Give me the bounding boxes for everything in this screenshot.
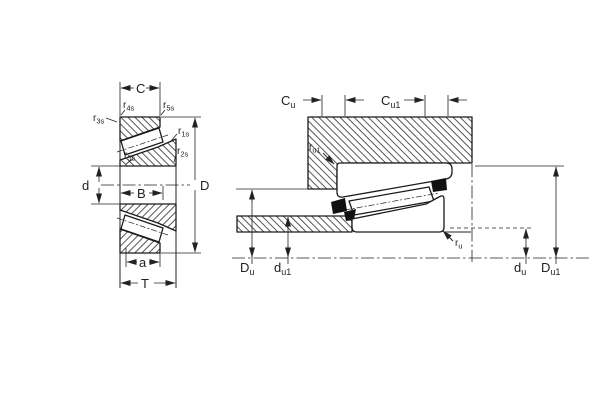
- chamfer-label-r4: r4s: [123, 100, 135, 113]
- dim-label-du: du: [514, 260, 526, 277]
- dim-label-d: d: [82, 178, 89, 193]
- cage-wedge-lower: [331, 198, 347, 214]
- shaft-section: [237, 216, 352, 232]
- dim-label-a: a: [139, 255, 147, 270]
- bearing-diagram: C B a T d D r3s r4s r5s r1s r2s r5s: [0, 0, 600, 400]
- r3-leader: [106, 118, 117, 122]
- diagram-stage: C B a T d D r3s r4s r5s r1s r2s r5s: [0, 0, 600, 400]
- dim-label-T: T: [141, 276, 149, 291]
- chamfer-label-r5-top: r5s: [163, 100, 175, 113]
- right-view: Cu Cu1 ru1 ru Du du1 du: [232, 93, 592, 277]
- dim-label-Du1: Du1: [541, 260, 560, 277]
- dim-label-B: B: [137, 186, 146, 201]
- dim-label-du1: du1: [274, 260, 291, 277]
- dim-label-C: C: [136, 81, 145, 96]
- dim-label-ru: ru: [455, 238, 463, 251]
- dim-label-Cu: Cu: [281, 93, 295, 110]
- chamfer-label-r2: r2s: [177, 146, 189, 159]
- cup-mounted: [337, 163, 452, 197]
- left-view-bottom-section: [117, 204, 176, 253]
- left-view: C B a T d D r3s r4s r5s r1s r2s r5s: [82, 81, 209, 291]
- chamfer-label-r1: r1s: [178, 126, 190, 139]
- dim-label-Cu1: Cu1: [381, 93, 400, 110]
- dim-label-D: D: [200, 178, 209, 193]
- chamfer-label-r3: r3s: [93, 113, 105, 126]
